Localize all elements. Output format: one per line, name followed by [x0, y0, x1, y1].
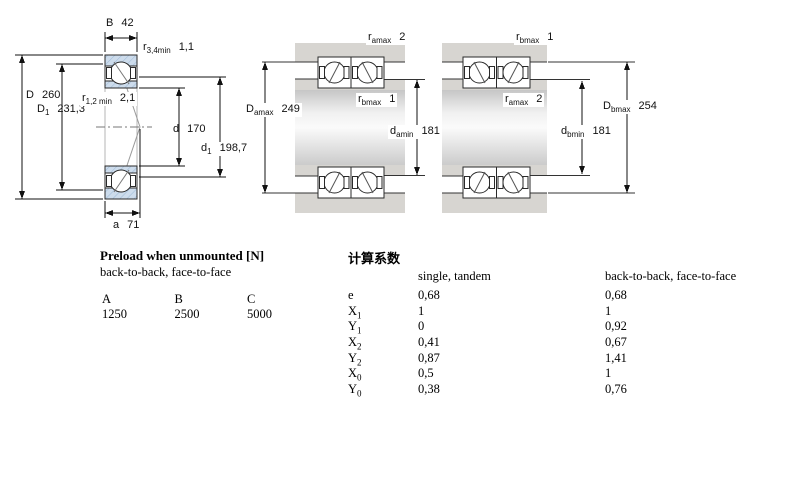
- factor-row: Y100,92: [348, 319, 768, 335]
- factor-value-single-tandem: 0,38: [418, 382, 605, 398]
- factor-symbol: Y1: [348, 319, 418, 335]
- factor-value-back-to-back: 1: [605, 366, 768, 382]
- dim-label-D1: D1231,3: [37, 103, 85, 117]
- cage-mark: [107, 176, 112, 187]
- factor-symbol: Y2: [348, 351, 418, 367]
- factor-value-back-to-back: 0,76: [605, 382, 768, 398]
- bearing-pair-bottom: [463, 167, 530, 198]
- dim-label-Dbmax: Dbmax254: [601, 100, 659, 114]
- dim-label-a: a71: [113, 219, 139, 232]
- factor-value-back-to-back: 1,41: [605, 351, 768, 367]
- dim-label-d: d170: [173, 123, 205, 136]
- dim-label-rbmax-right: rbmax1: [514, 31, 555, 45]
- factor-value-single-tandem: 1: [418, 304, 605, 320]
- preload-col-header: C: [247, 292, 320, 307]
- dim-label-rbmax-middle: rbmax1: [356, 93, 397, 107]
- dim-label-r12min: r1,2 min2,1: [80, 92, 137, 106]
- dim-label-Damax: Damax249: [244, 103, 302, 117]
- factor-value-back-to-back: 0,68: [605, 288, 768, 304]
- factor-value-single-tandem: 0: [418, 319, 605, 335]
- dim-label-ramax-right: ramax2: [503, 93, 544, 107]
- factor-row: X00,51: [348, 366, 768, 382]
- factor-row: Y00,380,76: [348, 382, 768, 398]
- factors-col2-header: back-to-back, face-to-face: [605, 269, 768, 285]
- factor-value-single-tandem: 0,41: [418, 335, 605, 351]
- dim-label-ramax-middle: ramax2: [366, 31, 407, 45]
- preload-title: Preload when unmounted [N]: [100, 248, 264, 264]
- cage-mark: [131, 68, 136, 79]
- bearing-pair-top: [463, 57, 530, 88]
- dim-label-damin: damin181: [388, 125, 442, 139]
- factor-row: Y20,871,41: [348, 351, 768, 367]
- bearing-pair-bottom: [318, 167, 384, 198]
- factor-value-single-tandem: 0,5: [418, 366, 605, 382]
- preload-col-value: 1250: [102, 307, 175, 322]
- preload-values: 125025005000: [102, 307, 320, 322]
- factors-col1-header: single, tandem: [418, 269, 605, 285]
- preload-column-headers: ABC: [102, 292, 320, 307]
- factor-value-back-to-back: 1: [605, 304, 768, 320]
- cage-mark: [107, 68, 112, 79]
- factor-symbol: e: [348, 288, 418, 304]
- factor-symbol: Y0: [348, 382, 418, 398]
- factor-value-single-tandem: 0,87: [418, 351, 605, 367]
- bearing-datasheet-page: B42 r3,4min1,1 D260 D1231,3 r1,2 min2,1 …: [0, 0, 800, 500]
- factor-row: X20,410,67: [348, 335, 768, 351]
- factor-symbol: X1: [348, 304, 418, 320]
- preload-col-value: 2500: [175, 307, 248, 322]
- dim-label-B: B42: [106, 17, 134, 30]
- factor-value-single-tandem: 0,68: [418, 288, 605, 304]
- factor-symbol: X2: [348, 335, 418, 351]
- preload-col-value: 5000: [247, 307, 320, 322]
- factor-value-back-to-back: 0,92: [605, 319, 768, 335]
- preload-subtitle: back-to-back, face-to-face: [100, 265, 231, 280]
- dim-label-D: D260: [26, 89, 60, 102]
- factors-rows: e0,680,68 X111 Y100,92 X20,410,67 Y20,87…: [348, 288, 768, 398]
- preload-col-header: A: [102, 292, 175, 307]
- factor-value-back-to-back: 0,67: [605, 335, 768, 351]
- factors-title: 计算系数: [348, 248, 400, 267]
- dim-label-d1: d1198,7: [199, 142, 249, 156]
- factor-row: X111: [348, 304, 768, 320]
- factor-symbol: X0: [348, 366, 418, 382]
- dim-label-r34min: r3,4min1,1: [143, 41, 194, 55]
- dim-label-dbmin: dbmin181: [559, 125, 613, 139]
- bearing-pair-top: [318, 57, 384, 88]
- factors-column-headers: single, tandemback-to-back, face-to-face: [348, 269, 768, 285]
- preload-col-header: B: [175, 292, 248, 307]
- factor-row: e0,680,68: [348, 288, 768, 304]
- cage-mark: [131, 176, 136, 187]
